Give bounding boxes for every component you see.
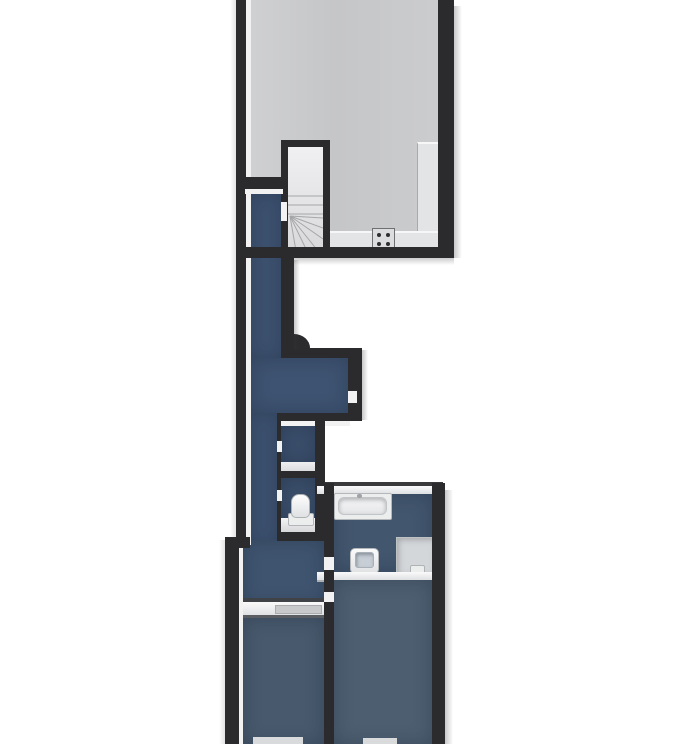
corridor-wide xyxy=(251,358,348,413)
wall-left-jog xyxy=(225,537,250,548)
wall-bump-bottom-face xyxy=(277,421,350,426)
shadow-bump-wall xyxy=(362,350,368,420)
wall-right-top xyxy=(438,0,454,258)
door-marker-bathroom xyxy=(324,557,334,570)
stair-door-marker xyxy=(281,202,287,221)
wall-left-lower xyxy=(225,537,239,744)
corridor-top-sill xyxy=(245,189,283,194)
hall-landing xyxy=(243,540,324,605)
shadow-left-upper xyxy=(230,0,236,540)
corridor-lower xyxy=(251,413,277,545)
wall-bottom-top-section xyxy=(236,247,454,258)
wall-left-lining-top xyxy=(246,0,251,178)
door-marker-corridor xyxy=(348,391,357,403)
shadow-corridor-wall xyxy=(294,260,300,350)
bedroom-right xyxy=(334,580,432,744)
shadow-right-top xyxy=(454,6,462,258)
bathtub-faucet-icon xyxy=(357,494,362,498)
floor-plan xyxy=(0,0,679,744)
landing-divider-door xyxy=(275,605,322,614)
bathtub-basin xyxy=(338,497,387,515)
door-marker-wc xyxy=(277,490,282,501)
staircase xyxy=(288,147,323,251)
wall-divider-gray-blue xyxy=(236,177,288,189)
sink-basin xyxy=(355,552,374,568)
wall-corridor-bump-right xyxy=(348,348,362,420)
closet xyxy=(281,425,315,463)
corridor-upper xyxy=(251,194,281,358)
bedroom-left xyxy=(243,618,324,744)
wall-middle-vertical xyxy=(324,483,334,744)
door-marker-closet xyxy=(277,441,282,452)
door-marker-bedroom-right xyxy=(324,592,334,602)
shadow-under-top-wall xyxy=(294,258,454,265)
wall-right-lower xyxy=(432,483,445,744)
toilet-icon xyxy=(291,494,310,518)
window-sill-bottom-right xyxy=(363,738,397,744)
window-sill-bottom-left xyxy=(253,737,303,744)
wall-closet-wc-divider xyxy=(277,471,325,478)
wall-wc-bottom xyxy=(277,532,325,541)
wall-below-stairs xyxy=(281,258,294,352)
shadow-left-lower xyxy=(219,540,225,744)
wall-closet-left xyxy=(277,421,281,540)
shadow-right-lower xyxy=(445,490,453,744)
